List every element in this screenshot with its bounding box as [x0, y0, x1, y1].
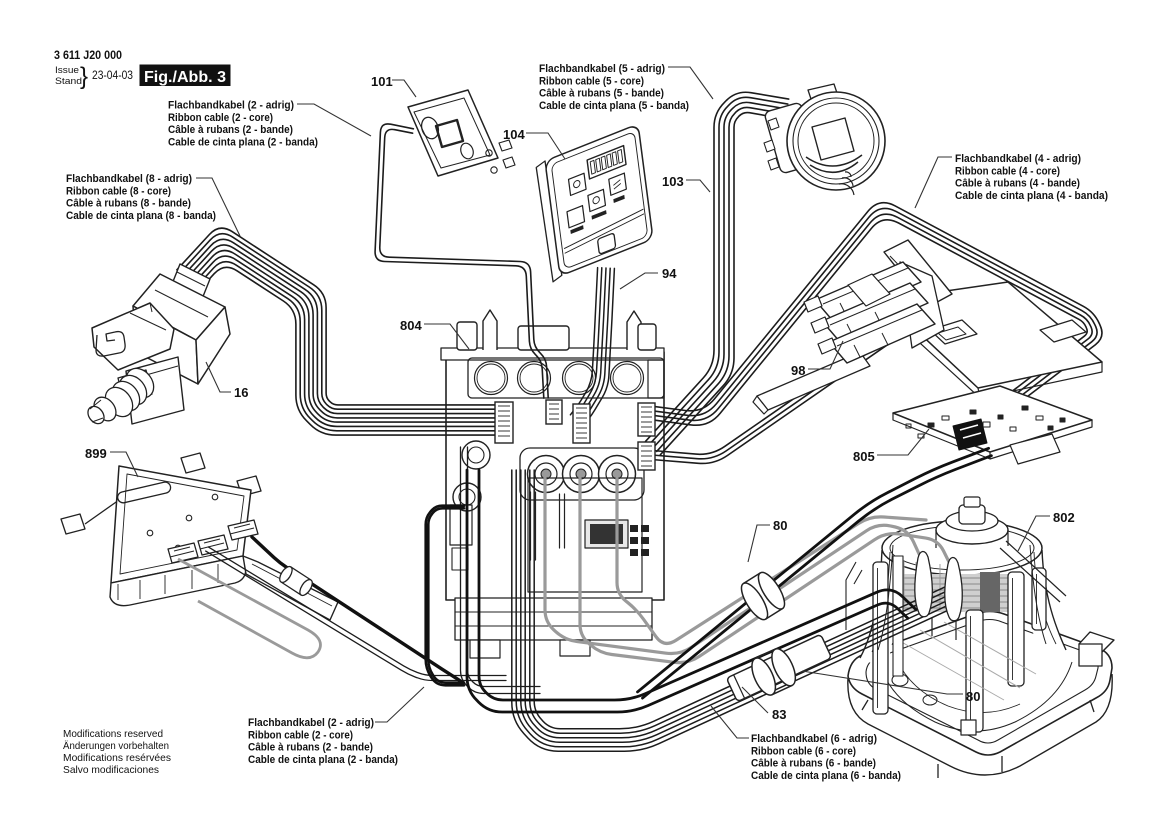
- svg-text:Fig./Abb. 3: Fig./Abb. 3: [144, 69, 226, 86]
- svg-text:Ribbon cable (4 - core): Ribbon cable (4 - core): [955, 165, 1060, 177]
- svg-text:Cable de cinta plana (6 - band: Cable de cinta plana (6 - banda): [751, 770, 901, 782]
- svg-text:Cable de cinta plana (8 - band: Cable de cinta plana (8 - banda): [66, 210, 216, 222]
- svg-text:Salvo modificaciones: Salvo modificaciones: [63, 764, 159, 776]
- svg-text:Ribbon cable (2 - core): Ribbon cable (2 - core): [248, 729, 353, 741]
- svg-text:Câble à rubans (5 - bande): Câble à rubans (5 - bande): [539, 88, 664, 100]
- svg-text:Cable de cinta plana (2 - band: Cable de cinta plana (2 - banda): [248, 754, 398, 766]
- svg-text:Ribbon cable (8 - core): Ribbon cable (8 - core): [66, 185, 171, 197]
- svg-text:Modifications reserved: Modifications reserved: [63, 728, 163, 740]
- svg-text:Cable de cinta plana (4 - band: Cable de cinta plana (4 - banda): [955, 190, 1108, 202]
- svg-text:Flachbandkabel (5 - adrig): Flachbandkabel (5 - adrig): [539, 63, 665, 75]
- svg-text:Flachbandkabel (2 - adrig): Flachbandkabel (2 - adrig): [248, 717, 374, 729]
- svg-text:Câble à rubans (8 - bande): Câble à rubans (8 - bande): [66, 198, 191, 210]
- svg-text:83: 83: [772, 707, 786, 722]
- svg-text:Câble à rubans (6 - bande): Câble à rubans (6 - bande): [751, 758, 876, 770]
- svg-text:802: 802: [1053, 510, 1075, 525]
- svg-text:3 611 J20 000: 3 611 J20 000: [54, 48, 122, 62]
- svg-text:98: 98: [791, 363, 805, 378]
- svg-text:Câble à rubans (2 - bande): Câble à rubans (2 - bande): [248, 742, 373, 754]
- svg-text:Ribbon cable (2 - core): Ribbon cable (2 - core): [168, 112, 273, 124]
- svg-text:Flachbandkabel (6 - adrig): Flachbandkabel (6 - adrig): [751, 733, 877, 745]
- svg-text:Änderungen vorbehalten: Änderungen vorbehalten: [63, 740, 169, 752]
- svg-text:94: 94: [662, 266, 677, 281]
- svg-text:16: 16: [234, 385, 248, 400]
- svg-text:Câble à rubans (4 - bande): Câble à rubans (4 - bande): [955, 178, 1080, 190]
- svg-text:Issue: Issue: [55, 65, 79, 76]
- svg-text:804: 804: [400, 318, 422, 333]
- svg-text:Stand: Stand: [55, 76, 82, 87]
- svg-text:Ribbon cable (6 - core): Ribbon cable (6 - core): [751, 745, 856, 757]
- svg-text:80: 80: [966, 689, 980, 704]
- svg-text:103: 103: [662, 174, 684, 189]
- svg-text:Ribbon cable (5 - core): Ribbon cable (5 - core): [539, 75, 644, 87]
- svg-text:80: 80: [773, 518, 787, 533]
- svg-text:Câble à rubans (2 - bande): Câble à rubans (2 - bande): [168, 124, 293, 136]
- svg-text:Cable de cinta plana (2 - band: Cable de cinta plana (2 - banda): [168, 136, 318, 148]
- svg-text:Cable de cinta plana (5 - band: Cable de cinta plana (5 - banda): [539, 100, 689, 112]
- svg-text:104: 104: [503, 127, 525, 142]
- svg-text:Flachbandkabel (2 - adrig): Flachbandkabel (2 - adrig): [168, 100, 294, 112]
- svg-text:}: }: [80, 63, 88, 90]
- svg-text:101: 101: [371, 74, 393, 89]
- svg-text:899: 899: [85, 446, 107, 461]
- svg-text:23-04-03: 23-04-03: [92, 70, 133, 82]
- svg-text:805: 805: [853, 449, 875, 464]
- svg-text:Flachbandkabel (4 - adrig): Flachbandkabel (4 - adrig): [955, 153, 1081, 165]
- svg-text:Modifications resérvées: Modifications resérvées: [63, 752, 171, 764]
- svg-text:Flachbandkabel (8 - adrig): Flachbandkabel (8 - adrig): [66, 173, 192, 185]
